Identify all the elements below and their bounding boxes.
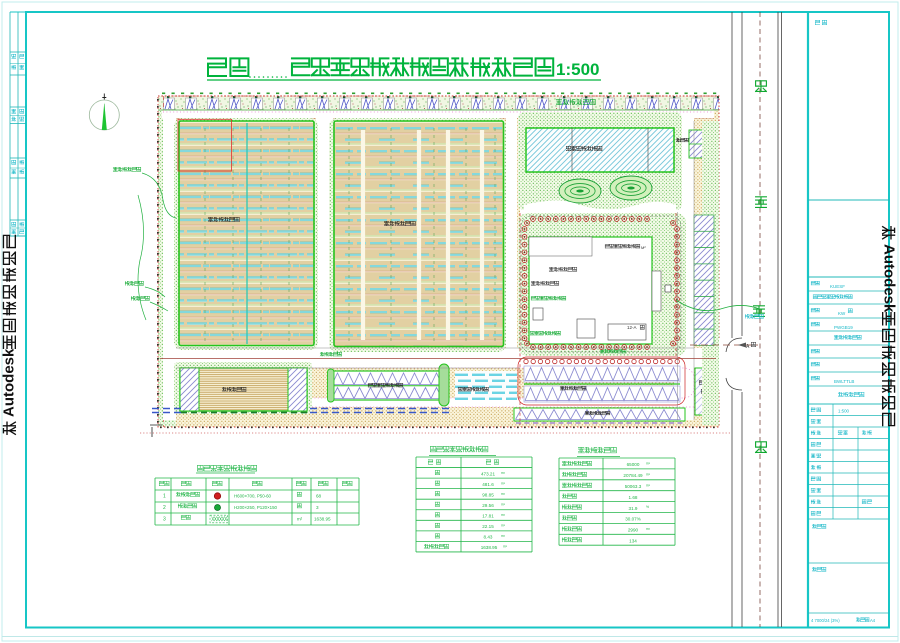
svg-text:65000: 65000 (627, 462, 640, 467)
svg-text:4 7000/24 (3%): 4 7000/24 (3%) (811, 618, 840, 623)
svg-text:2990: 2990 (628, 528, 639, 533)
svg-text:3: 3 (316, 505, 319, 510)
svg-text:134: 134 (629, 539, 637, 544)
svg-text:473.21: 473.21 (481, 471, 495, 476)
svg-text:3: 3 (163, 517, 166, 523)
svg-text:98.85: 98.85 (482, 492, 494, 497)
svg-text:Autodesk: Autodesk (881, 244, 898, 313)
svg-text:1:500: 1:500 (556, 60, 599, 79)
svg-text:1: 1 (163, 494, 166, 500)
svg-text:Autodesk: Autodesk (1, 348, 18, 417)
svg-text:KUESF: KUESF (830, 284, 845, 289)
svg-text:68: 68 (316, 494, 322, 499)
svg-text:H200×250, P120×150: H200×250, P120×150 (234, 505, 278, 510)
svg-text:31.9: 31.9 (629, 506, 638, 511)
svg-text:50063.3: 50063.3 (625, 484, 642, 489)
svg-text:8.43: 8.43 (484, 535, 493, 540)
svg-text:481.6: 481.6 (482, 482, 494, 487)
svg-text:22.15: 22.15 (482, 524, 494, 529)
svg-text:KW: KW (838, 311, 846, 316)
svg-text:1638.95: 1638.95 (481, 545, 498, 550)
svg-text:2: 2 (163, 505, 166, 511)
svg-text:1.68: 1.68 (629, 495, 638, 500)
svg-text:29.56: 29.56 (482, 503, 494, 508)
svg-text:BWLTTLB: BWLTTLB (834, 379, 854, 384)
svg-text:H600×700, P50-60: H600×700, P50-60 (234, 494, 272, 499)
svg-text:PWGB19: PWGB19 (834, 325, 853, 330)
svg-text:A4: A4 (870, 618, 876, 623)
svg-text:12-A: 12-A (627, 325, 637, 330)
svg-text:17.81: 17.81 (482, 514, 494, 519)
svg-text:1:500: 1:500 (838, 409, 850, 414)
svg-text:30.07%: 30.07% (625, 517, 641, 522)
svg-text:m²: m² (297, 517, 303, 522)
svg-text:M²: M² (641, 245, 646, 250)
svg-text:%: % (646, 505, 649, 509)
svg-text:20784.49: 20784.49 (623, 473, 643, 478)
svg-text:1638.95: 1638.95 (314, 517, 331, 522)
